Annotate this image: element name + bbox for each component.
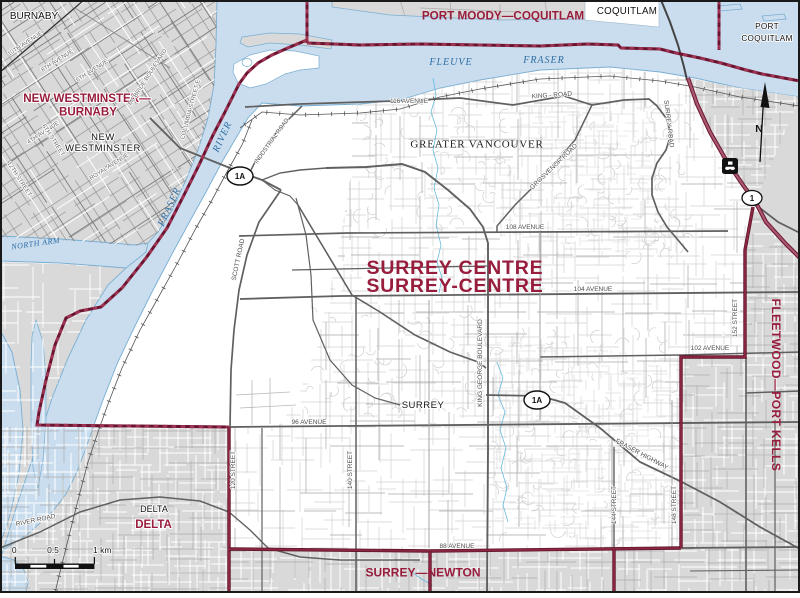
svg-text:WESTMINSTER: WESTMINSTER: [65, 143, 141, 154]
svg-text:DELTA: DELTA: [140, 504, 168, 514]
svg-text:NEW: NEW: [91, 132, 115, 143]
svg-text:GREATER VANCOUVER: GREATER VANCOUVER: [410, 139, 543, 151]
svg-text:FLEETWOOD—PORT KELLS: FLEETWOOD—PORT KELLS: [769, 299, 783, 472]
svg-text:1: 1: [750, 194, 755, 203]
svg-text:152 STREET: 152 STREET: [732, 299, 739, 337]
svg-text:FLEUVE: FLEUVE: [428, 57, 472, 68]
svg-text:PORT MOODY—COQUITLAM: PORT MOODY—COQUITLAM: [422, 10, 584, 23]
svg-text:COQUITLAM: COQUITLAM: [597, 6, 657, 17]
svg-text:KING GEORGE BOULEVARD: KING GEORGE BOULEVARD: [477, 319, 484, 407]
svg-text:148 STREET: 148 STREET: [671, 486, 678, 524]
svg-text:PORT: PORT: [755, 22, 779, 31]
svg-text:108 AVENUE: 108 AVENUE: [506, 224, 545, 231]
svg-text:0.5: 0.5: [47, 545, 59, 555]
svg-text:104 AVENUE: 104 AVENUE: [574, 286, 613, 293]
svg-text:BURNABY: BURNABY: [10, 11, 59, 22]
svg-text:1 km: 1 km: [93, 545, 111, 555]
svg-text:0: 0: [12, 545, 17, 555]
svg-text:SURREY: SURREY: [402, 400, 445, 411]
svg-text:116 AVENUE: 116 AVENUE: [390, 98, 429, 105]
svg-text:SURREY—NEWTON: SURREY—NEWTON: [365, 566, 480, 580]
svg-text:DELTA: DELTA: [135, 519, 172, 531]
svg-text:140 STREET: 140 STREET: [347, 451, 354, 489]
svg-text:102 AVENUE: 102 AVENUE: [691, 345, 730, 352]
svg-text:FRASER: FRASER: [522, 55, 565, 66]
svg-text:COQUITLAM: COQUITLAM: [741, 34, 792, 43]
svg-text:120 STREET: 120 STREET: [230, 451, 237, 489]
svg-text:144 STREET: 144 STREET: [611, 486, 618, 524]
svg-text:SURREY-CENTRE: SURREY-CENTRE: [366, 275, 543, 297]
svg-text:1A: 1A: [532, 396, 542, 405]
svg-text:BURNABY: BURNABY: [59, 106, 117, 119]
svg-text:N: N: [755, 123, 763, 135]
svg-text:96 AVENUE: 96 AVENUE: [292, 419, 328, 426]
svg-text:1A: 1A: [235, 172, 245, 181]
svg-text:88 AVENUE: 88 AVENUE: [440, 543, 476, 550]
